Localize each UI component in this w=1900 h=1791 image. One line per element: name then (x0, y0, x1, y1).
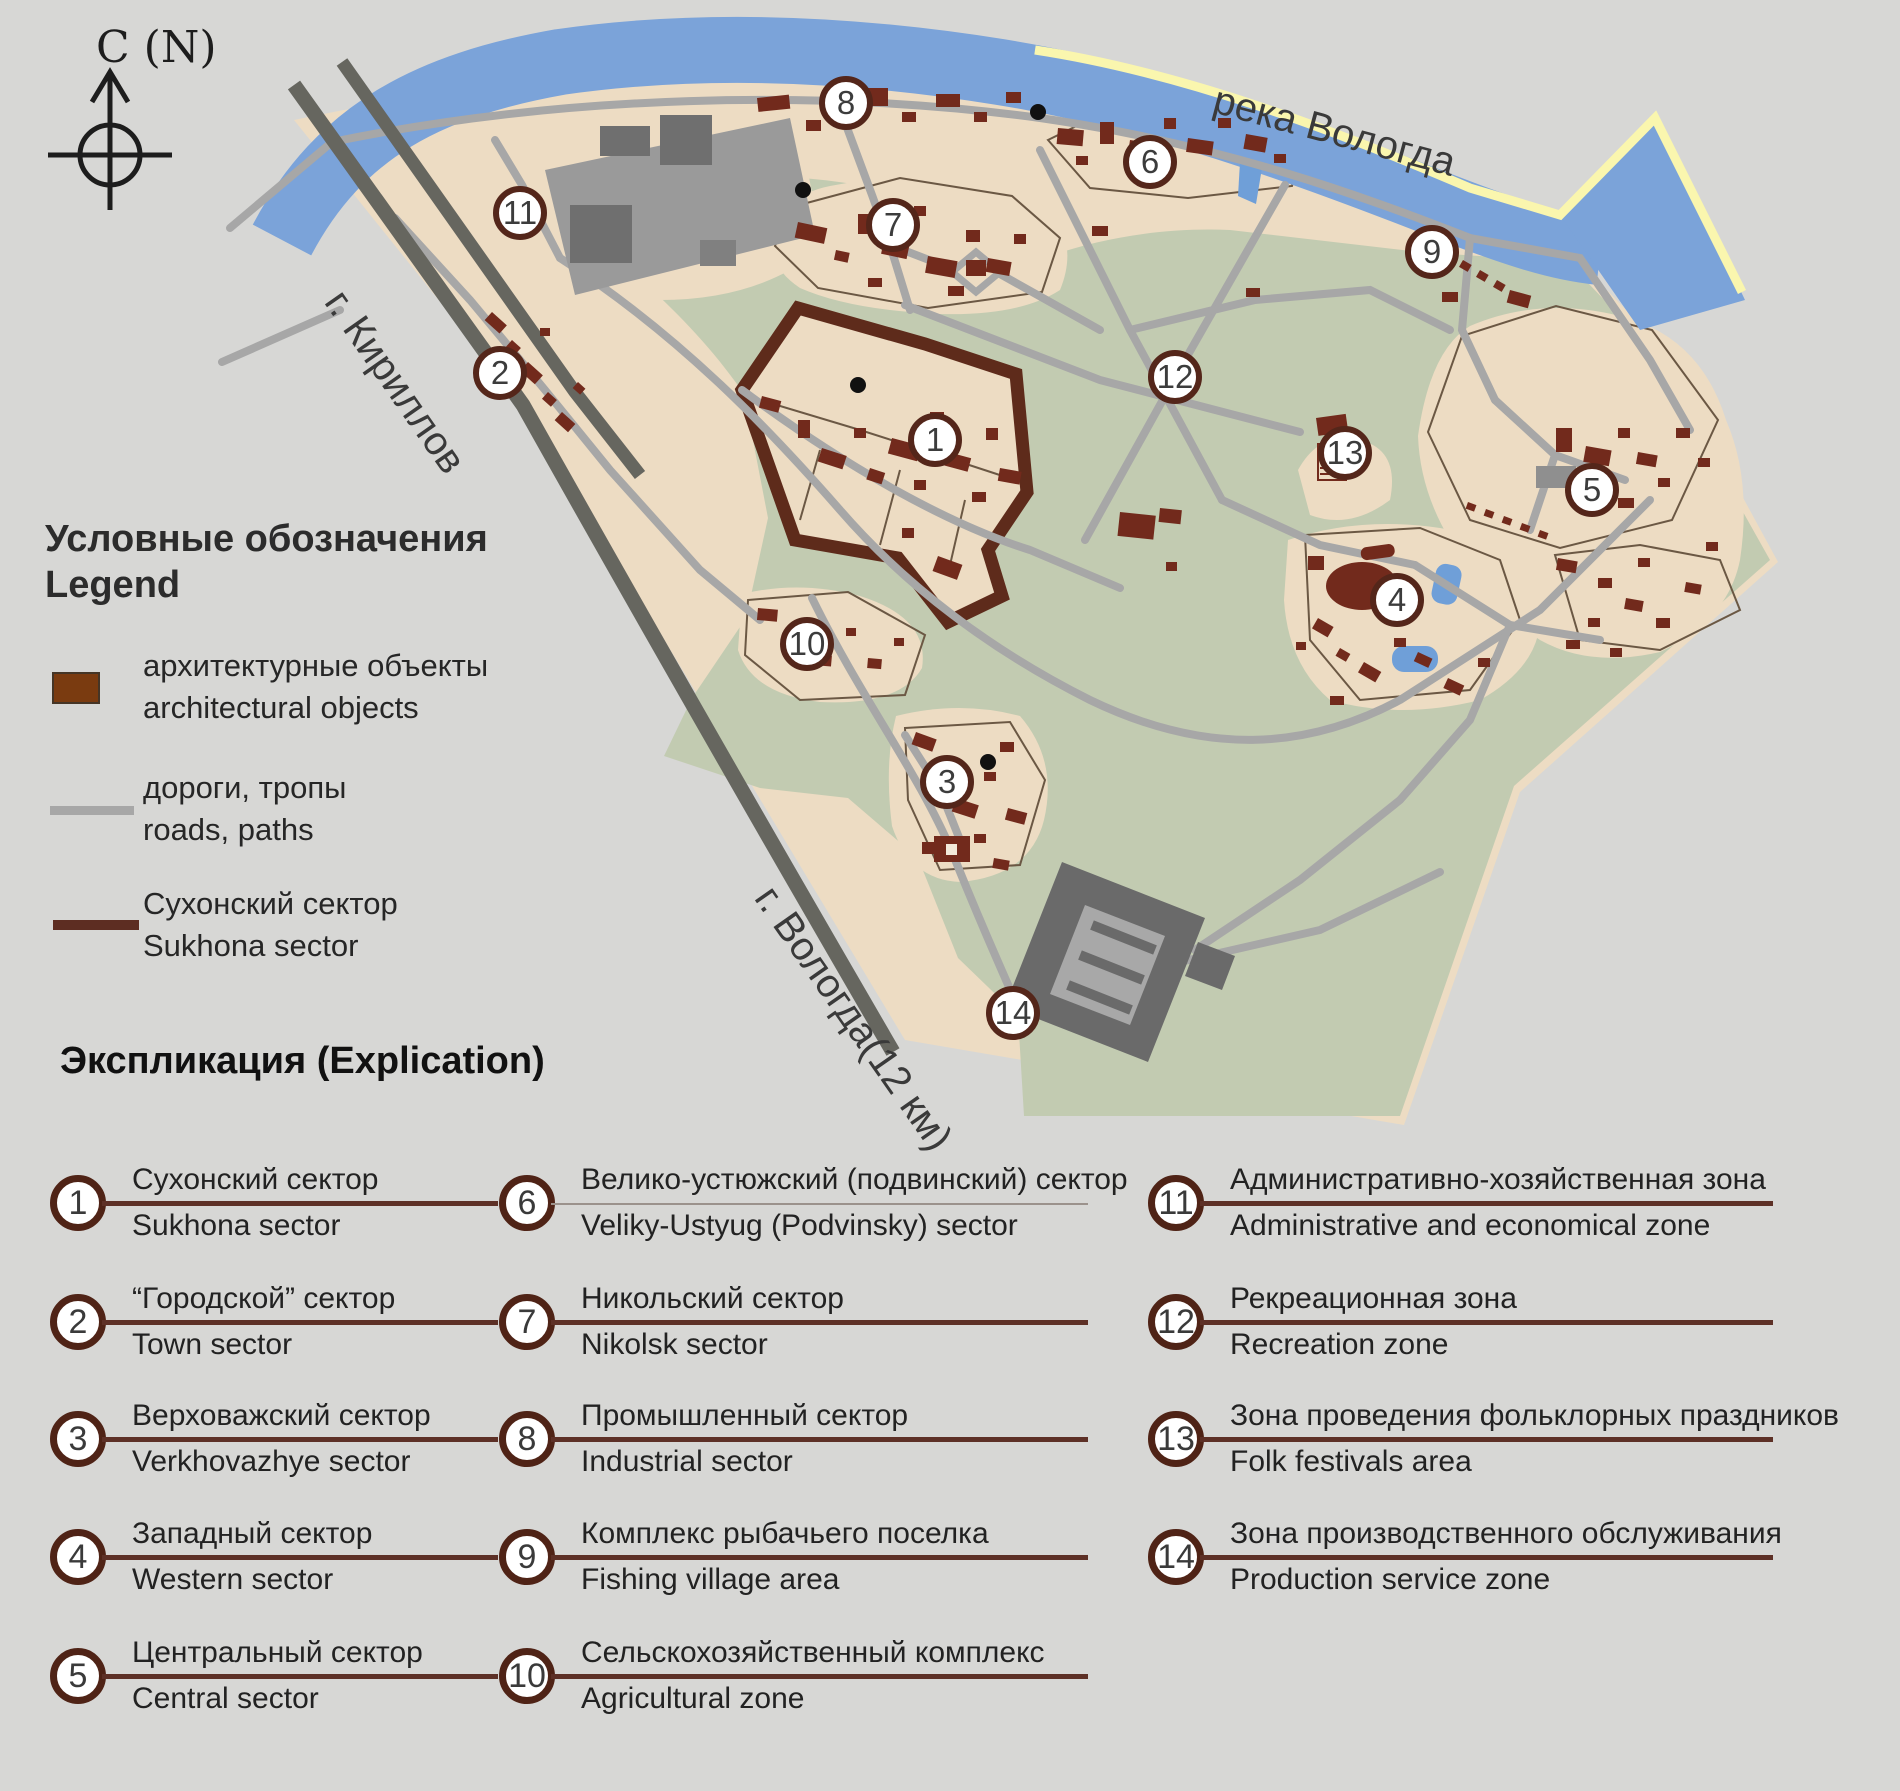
item-en: Verkhovazhye sector (132, 1445, 410, 1479)
explication-item-14: 14 Зона производственного обслуживанияPr… (1148, 1497, 1788, 1615)
legend-sukhona-ru: Сухонский сектор (143, 886, 398, 922)
item-ru: Сухонский сектор (132, 1163, 378, 1197)
item-rule (102, 1555, 498, 1560)
item-ru: Центральный сектор (132, 1636, 423, 1670)
road-swatch (50, 806, 134, 815)
item-en: Administrative and economical zone (1230, 1209, 1710, 1243)
item-ru: Зона проведения фольклорных праздников (1230, 1399, 1839, 1433)
map-marker-14: 14 (986, 986, 1040, 1040)
explication-item-11: 11 Административно-хозяйственная зонаAdm… (1148, 1143, 1788, 1261)
item-rule (551, 1437, 1088, 1442)
legend-title-ru: Условные обозначения (45, 516, 488, 562)
item-number-badge: 6 (499, 1175, 555, 1231)
item-ru: Сельскохозяйственный комплекс (581, 1636, 1045, 1670)
explication-item-6: 6 Велико-устюжский (подвинский) секторVe… (499, 1143, 1139, 1261)
item-rule (551, 1320, 1088, 1325)
item-rule (102, 1201, 498, 1206)
item-en: Town sector (132, 1328, 292, 1362)
item-number-badge: 5 (50, 1648, 106, 1704)
item-rule (102, 1674, 498, 1679)
item-number-badge: 14 (1148, 1529, 1204, 1585)
map-marker-12: 12 (1148, 350, 1202, 404)
item-number-badge: 8 (499, 1411, 555, 1467)
item-number-badge: 7 (499, 1294, 555, 1350)
map-marker-4: 4 (1370, 573, 1424, 627)
map-marker-11: 11 (493, 186, 547, 240)
legend-sukhona-en: Sukhona sector (143, 928, 358, 964)
item-number-badge: 2 (50, 1294, 106, 1350)
item-rule (1200, 1320, 1773, 1325)
item-rule (551, 1674, 1088, 1679)
legend-roads-ru: дороги, тропы (143, 770, 346, 806)
map-marker-6: 6 (1123, 135, 1177, 189)
item-ru: Комплекс рыбачьего поселка (581, 1517, 989, 1551)
item-en: Veliky-Ustyug (Podvinsky) sector (581, 1209, 1018, 1243)
map-marker-10: 10 (780, 617, 834, 671)
map-marker-13: 13 (1318, 426, 1372, 480)
map-marker-9: 9 (1405, 225, 1459, 279)
item-en: Central sector (132, 1682, 319, 1716)
explication-title: Экспликация (Explication) (60, 1040, 545, 1083)
explication-item-8: 8 Промышленный секторIndustrial sector (499, 1379, 1139, 1497)
legend-title-en: Legend (45, 562, 488, 608)
item-rule (1200, 1555, 1773, 1560)
item-number-badge: 4 (50, 1529, 106, 1585)
item-number-badge: 9 (499, 1529, 555, 1585)
museum-plan-page: С (N) река Вологда г. Кириллов г. Вологд… (0, 0, 1900, 1791)
item-en: Fishing village area (581, 1563, 839, 1597)
legend-arch-ru: архитектурные объекты (143, 648, 488, 684)
architectural-object-swatch (52, 672, 100, 704)
map-marker-5: 5 (1565, 463, 1619, 517)
item-rule (1200, 1437, 1773, 1442)
item-number-badge: 1 (50, 1175, 106, 1231)
explication-item-9: 9 Комплекс рыбачьего поселкаFishing vill… (499, 1497, 1139, 1615)
item-en: Industrial sector (581, 1445, 793, 1479)
item-ru: Рекреационная зона (1230, 1282, 1517, 1316)
item-ru: Промышленный сектор (581, 1399, 908, 1433)
item-ru: Никольский сектор (581, 1282, 844, 1316)
item-en: Recreation zone (1230, 1328, 1448, 1362)
item-ru: Западный сектор (132, 1517, 372, 1551)
legend-arch-en: architectural objects (143, 690, 419, 726)
map-marker-7: 7 (866, 198, 920, 252)
explication-item-12: 12 Рекреационная зонаRecreation zone (1148, 1262, 1788, 1380)
item-ru: “Городской” сектор (132, 1282, 395, 1316)
item-number-badge: 3 (50, 1411, 106, 1467)
item-en: Western sector (132, 1563, 333, 1597)
explication-item-13: 13 Зона проведения фольклорных празднико… (1148, 1379, 1788, 1497)
item-rule (102, 1320, 498, 1325)
item-rule (551, 1555, 1088, 1560)
map-marker-1: 1 (908, 413, 962, 467)
item-ru: Верховажский сектор (132, 1399, 431, 1433)
item-en: Production service zone (1230, 1563, 1550, 1597)
item-en: Agricultural zone (581, 1682, 804, 1716)
diamond-building (966, 260, 986, 276)
map-marker-3: 3 (920, 755, 974, 809)
item-ru: Административно-хозяйственная зона (1230, 1163, 1766, 1197)
legend-title: Условные обозначения Legend (45, 516, 488, 608)
item-rule (1200, 1201, 1773, 1206)
item-en: Nikolsk sector (581, 1328, 768, 1362)
item-en: Sukhona sector (132, 1209, 340, 1243)
sukhona-line-swatch (53, 920, 139, 930)
item-number-badge: 10 (499, 1648, 555, 1704)
explication-item-7: 7 Никольский секторNikolsk sector (499, 1262, 1139, 1380)
item-number-badge: 12 (1148, 1294, 1204, 1350)
legend-roads-en: roads, paths (143, 812, 314, 848)
item-rule (551, 1203, 1088, 1205)
explication-item-10: 10 Сельскохозяйственный комплексAgricult… (499, 1616, 1139, 1734)
item-number-badge: 11 (1148, 1175, 1204, 1231)
item-en: Folk festivals area (1230, 1445, 1472, 1479)
compass-icon (40, 60, 190, 230)
item-ru: Велико-устюжский (подвинский) сектор (581, 1163, 1128, 1197)
item-rule (102, 1437, 498, 1442)
map-marker-2: 2 (473, 346, 527, 400)
item-number-badge: 13 (1148, 1411, 1204, 1467)
item-ru: Зона производственного обслуживания (1230, 1517, 1782, 1551)
map-marker-8: 8 (819, 76, 873, 130)
